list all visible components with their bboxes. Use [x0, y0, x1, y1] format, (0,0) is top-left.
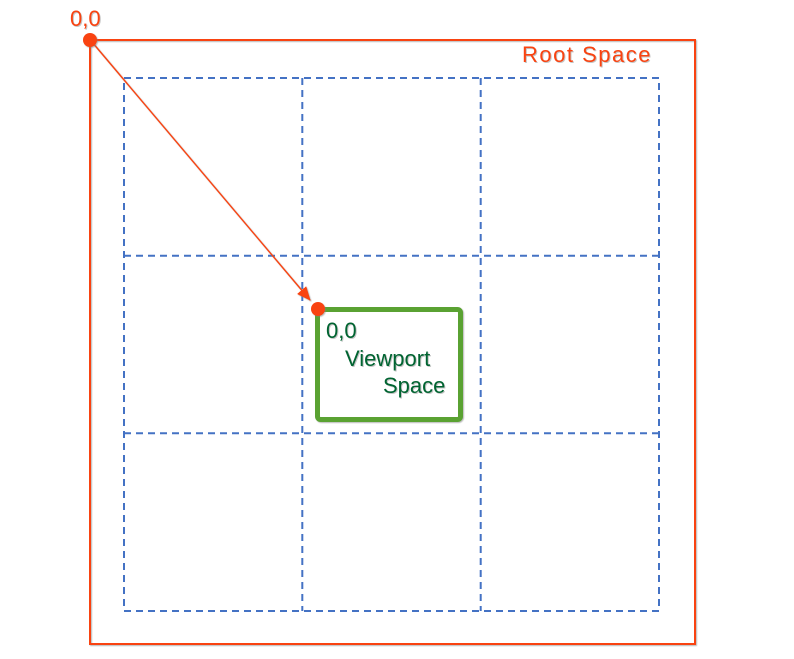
- root-origin-label: 0,0: [70, 6, 101, 31]
- root-origin-dot: [83, 33, 97, 47]
- diagram-canvas: Root Space 0,0 0,0 Viewport Space: [0, 0, 794, 659]
- viewport-origin-label: 0,0: [326, 318, 357, 343]
- viewport-space-label-line2: Space: [383, 373, 445, 398]
- viewport-origin-dot: [311, 302, 325, 316]
- root-space-label: Root Space: [522, 42, 652, 67]
- viewport-space-label-line1: Viewport: [345, 346, 430, 371]
- coordinate-spaces-diagram: Root Space 0,0 0,0 Viewport Space: [0, 0, 794, 659]
